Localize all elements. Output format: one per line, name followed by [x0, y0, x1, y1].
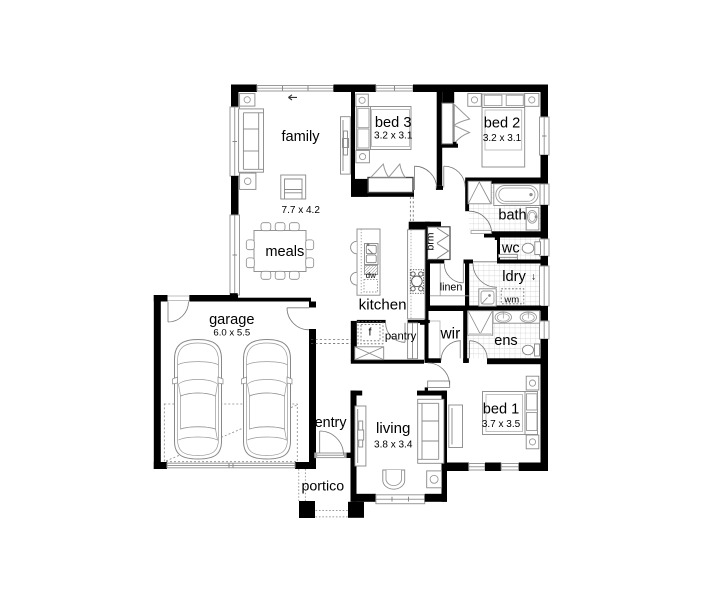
- svg-text:pantry: pantry: [385, 331, 417, 343]
- svg-text:f: f: [369, 327, 372, 339]
- svg-text:meals: meals: [265, 244, 304, 260]
- svg-text:3.8 x 3.4: 3.8 x 3.4: [374, 440, 413, 451]
- svg-text:ldry: ldry: [502, 269, 526, 285]
- svg-text:kitchen: kitchen: [359, 297, 407, 314]
- svg-text:garage: garage: [209, 312, 254, 328]
- svg-text:3.2 x 3.1: 3.2 x 3.1: [483, 133, 522, 144]
- svg-text:bed 3: bed 3: [375, 115, 412, 131]
- svg-text:6.0 x 5.5: 6.0 x 5.5: [213, 328, 250, 339]
- svg-text:↓: ↓: [531, 272, 536, 283]
- svg-text:bed 2: bed 2: [484, 116, 521, 132]
- svg-text:portico: portico: [302, 478, 345, 494]
- svg-text:living: living: [376, 420, 410, 437]
- svg-text:linen: linen: [440, 281, 463, 293]
- svg-text:entry: entry: [315, 415, 348, 431]
- svg-text:7.7 x 4.2: 7.7 x 4.2: [282, 205, 321, 216]
- svg-text:bath: bath: [498, 208, 526, 224]
- svg-text:family: family: [281, 129, 320, 145]
- svg-text:ens: ens: [494, 333, 517, 349]
- svg-text:bed 1: bed 1: [483, 402, 520, 418]
- svg-text:brm: brm: [424, 232, 436, 250]
- svg-text:3.2 x 3.1: 3.2 x 3.1: [374, 131, 413, 142]
- svg-text:wm: wm: [503, 294, 519, 305]
- svg-text:wc: wc: [501, 241, 520, 257]
- svg-text:dw: dw: [366, 271, 376, 280]
- svg-text:3.7 x 3.5: 3.7 x 3.5: [482, 419, 521, 430]
- svg-text:wir: wir: [439, 326, 460, 343]
